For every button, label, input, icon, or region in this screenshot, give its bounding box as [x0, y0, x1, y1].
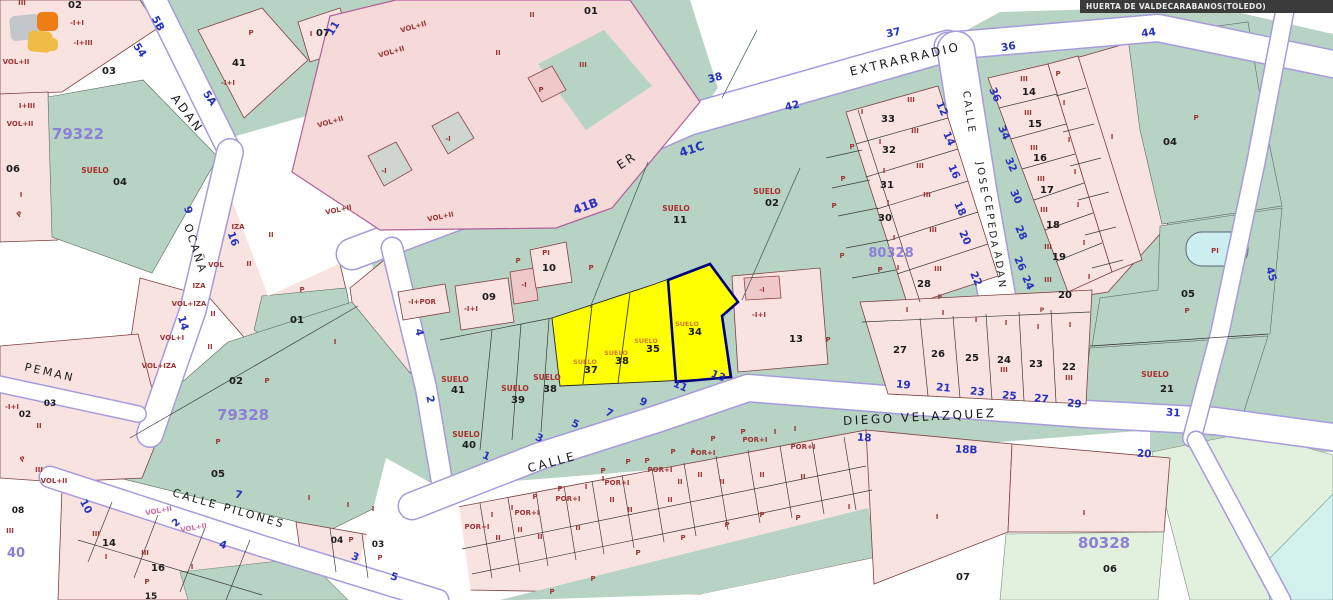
street-number-label: 36 [1000, 40, 1016, 54]
parcel-number-label: 25 [965, 353, 979, 364]
construction-label: P [588, 264, 593, 272]
parcel-number-label: 15 [145, 592, 158, 600]
street-number-label: 38 [707, 70, 724, 85]
block-number-label: 79328 [217, 406, 269, 424]
construction-label: P [759, 511, 764, 519]
construction-label: I [861, 108, 864, 116]
construction-label: III [1024, 109, 1032, 117]
construction-label: I [334, 338, 337, 346]
construction-label: II [575, 524, 580, 532]
construction-label: P [299, 286, 304, 294]
construction-label: P [680, 534, 685, 542]
map-title-bar: HUERTA DE VALDECARABANOS(TOLEDO) [1080, 0, 1333, 13]
construction-label: P [625, 458, 630, 466]
construction-label: -I+III [73, 39, 92, 47]
construction-label: II [697, 471, 702, 479]
construction-label: VOL+II [41, 477, 68, 485]
construction-label: P [839, 252, 844, 260]
construction-label: I [20, 191, 23, 199]
parcel-number-label: 40 [462, 440, 476, 451]
construction-label: III [1037, 175, 1045, 183]
construction-label: POR+I [556, 495, 581, 503]
construction-label: POR+I [465, 523, 490, 531]
construction-label: POR+I [648, 466, 673, 474]
street-number-label: 31 [1165, 407, 1180, 420]
parcel-number-label: 23 [1029, 359, 1043, 370]
construction-label: PI [1211, 247, 1219, 255]
parcel-number-label: 06 [6, 164, 20, 175]
construction-label: III [1020, 75, 1028, 83]
construction-label: I [511, 504, 514, 512]
suelo-label: SUELO [1141, 370, 1169, 379]
construction-label: VOL+I [160, 334, 184, 342]
parcel-number-label: 11 [673, 215, 687, 226]
construction-label: P [1040, 307, 1045, 314]
construction-label: II [210, 310, 215, 318]
construction-label: I [1083, 509, 1086, 517]
construction-label: II [495, 534, 500, 542]
construction-label: IZA [231, 223, 245, 231]
construction-label: I [347, 501, 350, 509]
construction-label: II [609, 496, 614, 504]
construction-label: P [635, 549, 640, 557]
parcel-number-label: 01 [290, 315, 304, 326]
construction-label: -I [521, 281, 527, 289]
parcel-number-label: 31 [880, 180, 894, 191]
parcel-number-label: 26 [931, 349, 945, 360]
construction-label: -I+I [70, 19, 84, 27]
construction-label: I [310, 30, 313, 38]
street-number-label: 37 [885, 26, 902, 41]
construction-label: II [36, 422, 41, 430]
construction-label: VOL+IZA [172, 300, 207, 308]
construction-label: III [1040, 206, 1048, 214]
construction-label: I [1088, 273, 1091, 281]
construction-label: III [911, 127, 919, 135]
construction-label: P [825, 336, 830, 344]
parcel-number-label: 24 [997, 355, 1011, 366]
construction-label: P [215, 438, 220, 446]
construction-label: I [1074, 168, 1077, 176]
construction-label: I [1068, 136, 1071, 144]
construction-label: III [929, 226, 937, 234]
suelo-label: SUELO [441, 375, 469, 384]
parcel-number-label: 14 [1022, 87, 1036, 98]
construction-label: I [602, 475, 605, 483]
street-number-label: 18B [955, 443, 978, 456]
construction-label: VOL+IZA [142, 362, 177, 370]
parcel-number-label: 07 [956, 572, 970, 583]
construction-label: III [1044, 276, 1052, 284]
construction-label: I+III [19, 102, 35, 110]
construction-label: I [692, 447, 695, 455]
construction-label: I [491, 511, 494, 519]
construction-label: I [1069, 321, 1072, 329]
parcel-number-label: 03 [372, 540, 385, 550]
parcel-number-label: 03 [102, 66, 116, 77]
construction-label: P [644, 457, 649, 465]
parcel-number-label: 05 [1181, 289, 1195, 300]
construction-label: -I+I [752, 311, 766, 319]
construction-label: III [141, 549, 149, 557]
construction-label: P [590, 575, 595, 583]
construction-label: P [740, 428, 745, 436]
suelo-label: SUELO [753, 187, 781, 196]
parcel-number-label: 35 [646, 344, 660, 355]
cadastral-map[interactable]: III02-I+I-I+IIIVOL+III+IIIVOL+II7932206I… [0, 0, 1333, 600]
construction-label: III [934, 265, 942, 273]
construction-label: -I+I [221, 79, 235, 87]
parcel-number-label: 18 [1046, 220, 1060, 231]
block-number-label: 40 [7, 546, 25, 561]
construction-label: I [887, 199, 890, 207]
construction-label: -I+I [5, 403, 19, 411]
construction-label: -I+I [464, 305, 478, 313]
street-number-label: 44 [1141, 26, 1157, 40]
street-number-label: 19 [895, 378, 911, 391]
street-number-label: 23 [969, 385, 985, 398]
construction-label: P [377, 554, 382, 562]
construction-label: III [579, 61, 587, 69]
construction-label: P [831, 202, 836, 210]
construction-label: P [348, 536, 353, 544]
construction-label: I [942, 309, 945, 317]
construction-label: I [372, 505, 375, 513]
parcel-number-label: 34 [688, 327, 702, 338]
construction-label: P [557, 485, 562, 493]
construction-label: I [308, 494, 311, 502]
parcel-number-label: 04 [113, 177, 127, 188]
parcel-number-label: 28 [917, 279, 931, 290]
parcel-number-label: 16 [1033, 153, 1047, 164]
construction-label: II [759, 471, 764, 479]
suelo-label: SUELO [533, 373, 561, 382]
construction-label: I [1063, 99, 1066, 107]
construction-label: I [897, 264, 900, 272]
construction-label: -I [381, 167, 387, 175]
construction-label: P [538, 86, 543, 94]
parcel-number-label: 13 [789, 334, 803, 345]
construction-label: P [248, 29, 253, 37]
construction-label: VOL [208, 261, 224, 269]
parcel-number-label: 02 [229, 376, 243, 387]
construction-label: P [264, 377, 269, 385]
block-number-label: 79322 [52, 125, 104, 143]
street-number-label: 21 [935, 381, 951, 394]
parcel-number-label: 39 [511, 395, 525, 406]
construction-label: P [144, 578, 149, 586]
construction-label: I [774, 428, 777, 436]
construction-label: I [1083, 239, 1086, 247]
construction-label: -I [445, 135, 451, 143]
suelo-label: SUELO [662, 204, 690, 213]
street-number-label: 18 [856, 432, 871, 445]
parcel-number-label: 08 [12, 506, 25, 516]
parcel-number-label: 16 [151, 563, 165, 574]
parcel-number-label: 04 [331, 536, 344, 546]
construction-label: III [1044, 243, 1052, 251]
construction-label: P [532, 493, 537, 501]
construction-label: III [35, 466, 43, 474]
parcel-number-label: 20 [1058, 290, 1072, 301]
construction-label: III [923, 191, 931, 199]
construction-label: P [795, 514, 800, 522]
parcel-number-label: 17 [1040, 185, 1054, 196]
construction-label: III [1065, 374, 1073, 382]
parcel-number-label: 03 [44, 399, 57, 409]
parcel-number-label: 14 [102, 538, 116, 549]
parcel-number-label: 38 [543, 384, 557, 395]
street-number-label: 27 [1033, 392, 1049, 405]
construction-label: II [677, 478, 682, 486]
map-title: HUERTA DE VALDECARABANOS(TOLEDO) [1086, 2, 1266, 11]
construction-label: II [495, 49, 500, 57]
construction-label: I [883, 167, 886, 175]
construction-label: I [975, 316, 978, 324]
construction-label: II [517, 526, 522, 534]
construction-label: I [879, 138, 882, 146]
parcel-number-label: 04 [1163, 137, 1177, 148]
parcel-number-label: 19 [1052, 252, 1066, 263]
parcel-number-label: 27 [893, 345, 907, 356]
construction-label: POR+I [515, 509, 540, 517]
construction-label: III [6, 527, 14, 535]
parcel-07-bottom [866, 430, 1012, 584]
parcel-number-label: 05 [211, 469, 225, 480]
construction-label: I [848, 503, 851, 511]
construction-label: I [1037, 323, 1040, 331]
parcel-number-label: 21 [1160, 384, 1174, 395]
construction-label: III [916, 162, 924, 170]
construction-label: II [268, 231, 273, 239]
construction-label: IZA [192, 282, 206, 290]
parcel-number-label: 02 [19, 410, 32, 420]
parcel-number-label: 02 [765, 198, 779, 209]
construction-label: P [1184, 307, 1189, 315]
parcel-number-label: 41 [451, 385, 465, 396]
app-logo [0, 0, 70, 60]
street-number-label: 29 [1066, 397, 1082, 410]
construction-label: III [1000, 366, 1008, 374]
parcel-number-label: 33 [881, 114, 895, 125]
parcel-number-label: 37 [584, 365, 598, 376]
cadastral-viewer: III02-I+I-I+IIIVOL+III+IIIVOL+II7932206I… [0, 0, 1333, 600]
construction-label: I [794, 425, 797, 433]
parcel-number-label: 41 [232, 58, 246, 69]
street-number-label: 20 [1137, 448, 1152, 461]
construction-label: P [1193, 114, 1198, 122]
construction-label: P [670, 448, 675, 456]
parcel-number-label: 02 [68, 0, 82, 11]
construction-label: II [719, 478, 724, 486]
parcel-number-label: 01 [584, 6, 598, 17]
block-number-label: 80328 [1078, 534, 1130, 552]
construction-label: I [1111, 133, 1114, 141]
construction-label: P [1055, 70, 1060, 78]
parcel-number-label: 15 [1028, 119, 1042, 130]
construction-label: I [936, 513, 939, 521]
block-number-label: 80328 [868, 246, 913, 261]
construction-label: II [207, 343, 212, 351]
construction-label: I [585, 483, 588, 491]
parcel-number-label: 06 [1103, 564, 1117, 575]
logo-yellow-square-small [46, 38, 58, 51]
construction-label: III [1030, 144, 1038, 152]
construction-label: II [246, 260, 251, 268]
parcel-number-label: 10 [542, 263, 556, 274]
construction-label: POR+I [743, 436, 768, 444]
construction-label: P [515, 257, 520, 265]
parcel-number-label: 32 [882, 145, 896, 156]
construction-label: PI [542, 249, 550, 257]
construction-label: VOL+II [7, 120, 34, 128]
suelo-label: SUELO [501, 384, 529, 393]
construction-label: I [1077, 201, 1080, 209]
construction-label: II [667, 496, 672, 504]
construction-label: P [938, 294, 943, 301]
suelo-label: SUELO [81, 166, 109, 175]
construction-label: I [1005, 319, 1008, 327]
suelo-label: SUELO [452, 430, 480, 439]
construction-label: P [710, 435, 715, 443]
construction-label: P [724, 521, 729, 529]
construction-label: I [906, 306, 909, 314]
construction-label: POR+I [791, 443, 816, 451]
construction-label: P [877, 266, 882, 274]
construction-label: I [105, 553, 108, 561]
construction-label: II [529, 11, 534, 19]
construction-label: -I+POR [408, 298, 436, 306]
parcel-number-label: 09 [482, 292, 496, 303]
construction-label: II [537, 533, 542, 541]
construction-label: III [92, 530, 100, 538]
construction-label: POR+I [605, 479, 630, 487]
construction-label: II [800, 473, 805, 481]
street-number-label: 25 [1001, 389, 1017, 402]
logo-orange-square [37, 12, 58, 31]
parcel-number-label: 30 [878, 213, 892, 224]
construction-label: I [893, 234, 896, 242]
construction-label: I [191, 563, 194, 571]
construction-label: II [627, 506, 632, 514]
construction-label: III [907, 96, 915, 104]
construction-label: P [549, 588, 554, 596]
parcel-number-label: 22 [1062, 362, 1076, 373]
parcel-number-label: 38 [615, 356, 629, 367]
construction-label: P [600, 467, 605, 475]
construction-label: P [849, 143, 854, 151]
construction-label: -I [759, 286, 765, 294]
construction-label: P [840, 175, 845, 183]
